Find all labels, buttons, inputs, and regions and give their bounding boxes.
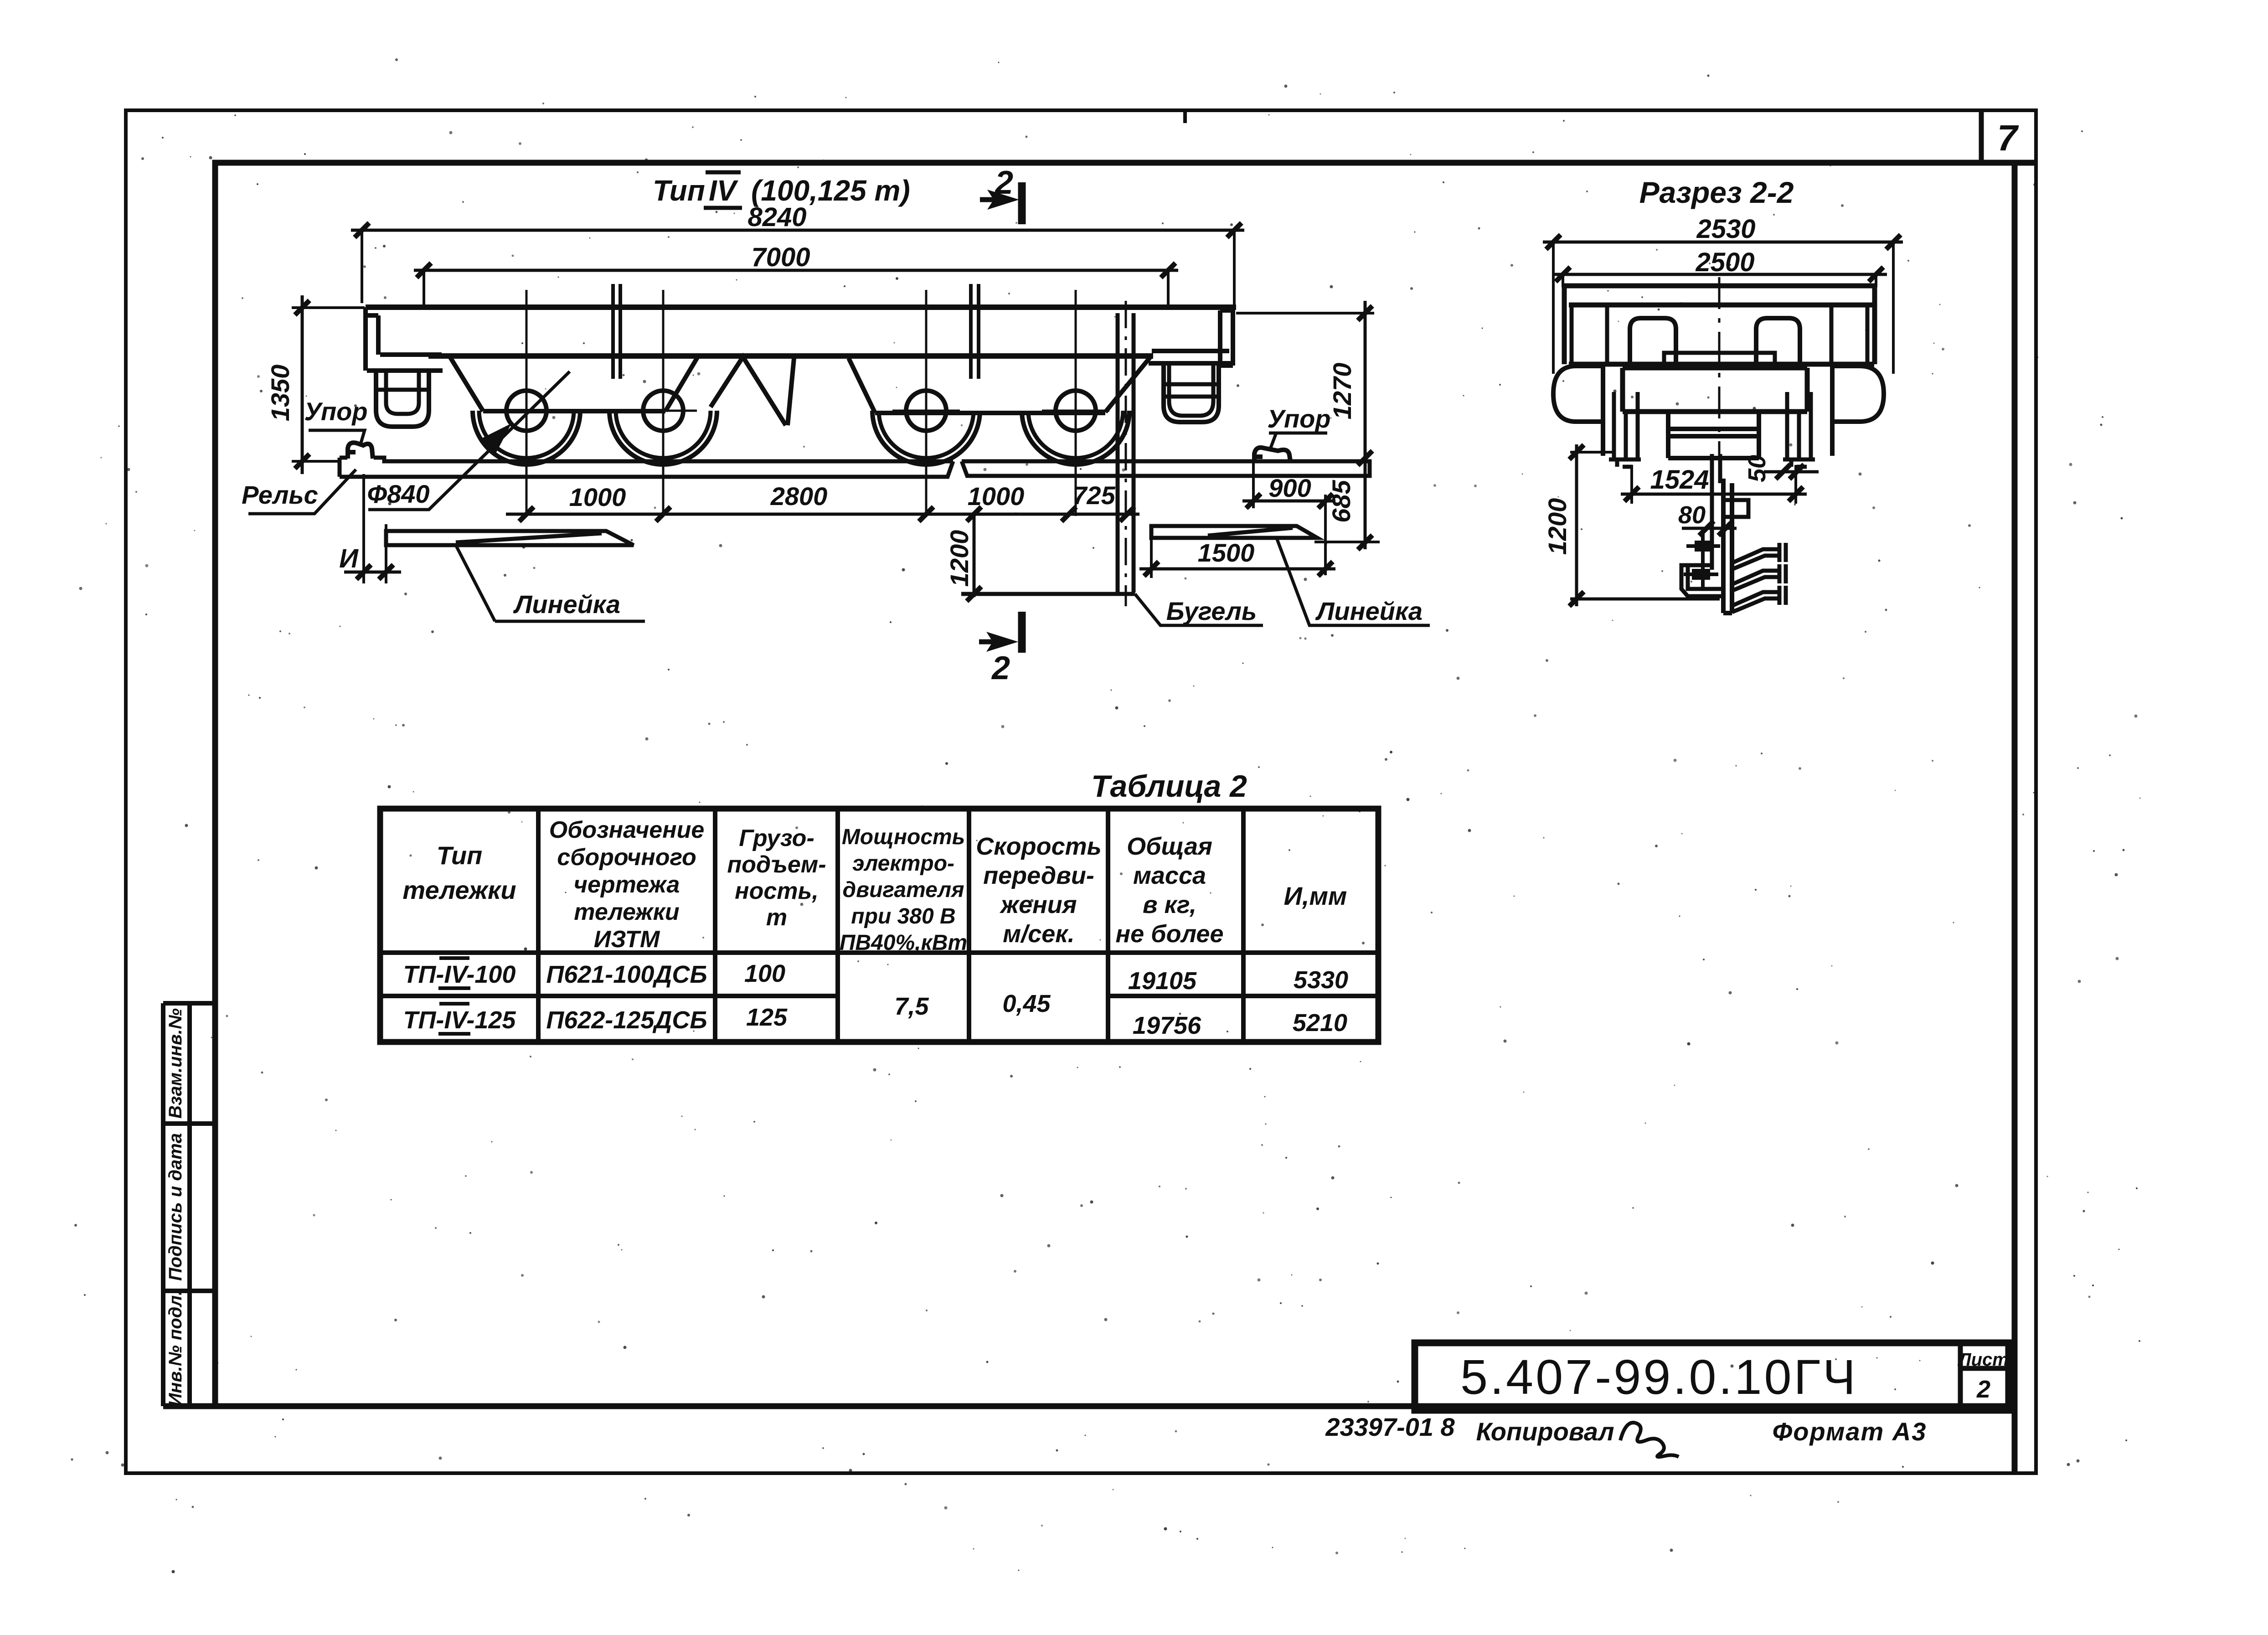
svg-text:жения: жения [999,891,1077,918]
svg-text:2800: 2800 [770,482,828,511]
svg-text:2: 2 [991,650,1010,686]
svg-text:чертежа: чертежа [574,872,680,898]
svg-text:электро-: электро- [852,851,954,876]
svg-text:2530: 2530 [1696,214,1755,244]
svg-text:1500: 1500 [1198,538,1255,567]
svg-text:125: 125 [746,1004,788,1031]
svg-text:Упор: Упор [304,397,367,426]
svg-text:тележки: тележки [402,876,516,904]
svg-text:ПВ40%,кВт: ПВ40%,кВт [840,931,967,955]
svg-text:2: 2 [1976,1376,1990,1403]
svg-text:в кг,: в кг, [1143,891,1196,918]
svg-text:Скорость: Скорость [976,833,1101,860]
svg-text:ТП-IV-100: ТП-IV-100 [403,961,516,988]
svg-text:1524: 1524 [1650,465,1709,495]
svg-text:И,мм: И,мм [1284,882,1347,910]
svg-text:тележки: тележки [574,899,679,925]
svg-text:м/сек.: м/сек. [1003,920,1074,948]
svg-text:подъем-: подъем- [727,851,826,878]
svg-text:П622-125ДСБ: П622-125ДСБ [546,1006,707,1034]
svg-text:П621-100ДСБ: П621-100ДСБ [546,961,707,988]
svg-text:И: И [339,544,359,573]
svg-text:2500: 2500 [1695,248,1754,277]
svg-text:Обозначение: Обозначение [549,817,705,843]
svg-text:5210: 5210 [1293,1009,1347,1037]
svg-text:23397-01 8: 23397-01 8 [1325,1413,1455,1441]
svg-text:Подпись и дата: Подпись и дата [165,1133,186,1281]
svg-text:100: 100 [744,960,785,987]
svg-text:1270: 1270 [1328,363,1356,420]
svg-text:Общая: Общая [1127,833,1212,860]
svg-text:Упор: Упор [1267,404,1330,433]
svg-text:725: 725 [1072,481,1115,510]
svg-text:1000: 1000 [569,483,626,511]
svg-text:Тип: Тип [437,841,483,870]
svg-text:IV: IV [709,174,739,207]
svg-text:Копировал: Копировал [1476,1417,1614,1446]
svg-text:7: 7 [1997,118,2019,158]
svg-text:685: 685 [1327,480,1356,522]
svg-text:сборочного: сборочного [557,844,696,871]
svg-text:Линейка: Линейка [513,590,620,619]
svg-text:19105: 19105 [1128,967,1197,995]
svg-text:передви-: передви- [983,862,1094,889]
svg-text:19756: 19756 [1133,1012,1201,1039]
svg-text:1200: 1200 [945,530,974,587]
svg-text:Разрез 2-2: Разрез 2-2 [1639,175,1794,209]
svg-text:1000: 1000 [968,482,1025,511]
svg-text:Тип: Тип [653,174,705,207]
svg-text:1200: 1200 [1543,498,1572,555]
svg-text:Инв.№ подл.: Инв.№ подл. [165,1290,186,1407]
svg-text:Ф840: Ф840 [367,480,429,508]
svg-text:ность,: ность, [735,878,819,904]
svg-text:Формат А3: Формат А3 [1773,1417,1927,1446]
svg-text:при 380 В: при 380 В [851,904,955,928]
svg-text:двигателя: двигателя [842,878,964,902]
svg-text:ИЗТМ: ИЗТМ [594,926,660,953]
svg-text:не более: не более [1115,920,1223,948]
svg-text:1350: 1350 [266,365,294,422]
svg-text:Мощность: Мощность [842,825,965,849]
svg-text:ТП-IV-125: ТП-IV-125 [403,1006,516,1034]
svg-text:Лист: Лист [1957,1350,2009,1370]
svg-text:5.407-99.0.10ГЧ: 5.407-99.0.10ГЧ [1460,1349,1858,1404]
svg-text:Таблица 2: Таблица 2 [1091,769,1247,804]
svg-text:5330: 5330 [1294,966,1348,994]
svg-text:900: 900 [1268,474,1311,502]
svg-text:Рельс: Рельс [242,480,318,509]
svg-text:Бугель: Бугель [1166,597,1257,625]
svg-text:7000: 7000 [751,242,810,272]
svg-text:0,45: 0,45 [1002,990,1051,1017]
svg-text:масса: масса [1133,862,1206,889]
svg-text:т: т [766,904,787,931]
svg-text:80: 80 [1678,501,1706,529]
svg-text:Линейка: Линейка [1315,597,1423,625]
svg-text:Грузо-: Грузо- [739,825,814,851]
svg-text:7,5: 7,5 [894,993,929,1020]
svg-text:8240: 8240 [747,202,806,232]
svg-text:Взам.инв.№: Взам.инв.№ [165,1008,186,1119]
svg-text:50: 50 [1743,455,1771,482]
